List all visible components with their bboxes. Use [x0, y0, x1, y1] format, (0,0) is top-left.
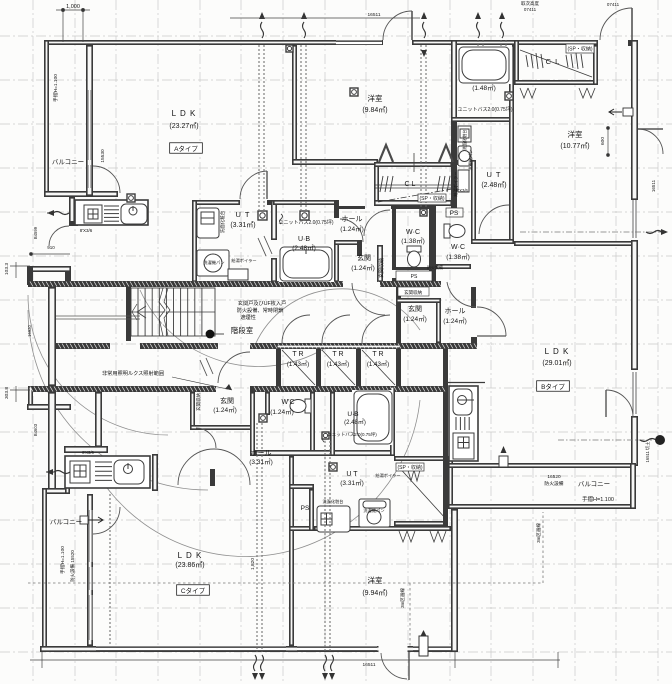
- svg-text:U·B: U·B: [347, 411, 358, 418]
- svg-text:U·B: U·B: [298, 236, 310, 243]
- svg-text:15530: 15530: [100, 149, 106, 163]
- svg-text:(10.77㎡): (10.77㎡): [560, 142, 589, 150]
- svg-text:L D K: L D K: [172, 109, 197, 118]
- svg-text:(2.48㎡): (2.48㎡): [344, 418, 366, 426]
- svg-text:取次高度: 取次高度: [521, 0, 539, 7]
- svg-text:(SP・収納): (SP・収納): [397, 464, 422, 471]
- svg-text:(29.01㎡): (29.01㎡): [542, 359, 571, 367]
- svg-text:1,000: 1,000: [66, 4, 80, 10]
- svg-text:(1.24㎡): (1.24㎡): [340, 224, 363, 233]
- svg-text:B4599: B4599: [33, 226, 38, 239]
- svg-text:洋室: 洋室: [368, 93, 383, 103]
- svg-text:(1.24㎡): (1.24㎡): [403, 314, 426, 323]
- svg-text:07411: 07411: [607, 2, 620, 7]
- svg-text:洗濯機パン: 洗濯機パン: [203, 259, 224, 266]
- svg-text:玄関収納: 玄関収納: [378, 258, 385, 278]
- svg-text:防火設備、常時閉鎖: 防火設備、常時閉鎖: [237, 306, 285, 314]
- svg-text:(1.24㎡): (1.24㎡): [270, 407, 293, 416]
- svg-text:洋室: 洋室: [568, 129, 583, 139]
- svg-text:洗面化粧台: 洗面化粧台: [219, 210, 226, 233]
- svg-text:W'C: W'C: [282, 399, 295, 406]
- svg-text:3m区画線: 3m区画線: [535, 523, 542, 543]
- svg-text:手摺H=1.100: 手摺H=1.100: [59, 546, 66, 574]
- svg-text:16520: 16520: [547, 474, 561, 480]
- svg-text:ユニットバス2.0(0.75坪): ユニットバス2.0(0.75坪): [327, 431, 377, 438]
- svg-text:910: 910: [47, 245, 55, 250]
- svg-text:洗濯機パン: 洗濯機パン: [467, 149, 474, 170]
- svg-text:バルコニー: バルコニー: [50, 518, 82, 526]
- svg-text:U T: U T: [236, 210, 251, 219]
- svg-text:ユニットバス2.0(0.75坪): ユニットバス2.0(0.75坪): [457, 106, 512, 113]
- svg-text:B4603: B4603: [33, 423, 38, 436]
- svg-text:PS: PS: [301, 505, 310, 512]
- svg-text:階段室: 階段室: [231, 325, 254, 335]
- svg-text:バルコニー: バルコニー: [578, 480, 610, 488]
- svg-text:(1.48㎡): (1.48㎡): [472, 83, 495, 92]
- svg-text:玄関: 玄関: [408, 304, 422, 313]
- svg-text:T R: T R: [292, 351, 303, 358]
- svg-text:U T: U T: [487, 170, 502, 179]
- svg-text:16920: 16920: [27, 325, 32, 337]
- svg-text:8'X3/6: 8'X3/6: [80, 228, 93, 233]
- svg-text:C L: C L: [405, 181, 416, 188]
- svg-text:玄関収納: 玄関収納: [404, 289, 422, 296]
- svg-text:W·C: W·C: [451, 244, 465, 251]
- svg-text:07411: 07411: [524, 7, 537, 12]
- svg-text:玄関収納: 玄関収納: [195, 393, 202, 411]
- svg-text:洗濯機パン: 洗濯機パン: [363, 507, 384, 514]
- svg-text:8'X3/6: 8'X3/6: [82, 450, 94, 455]
- svg-text:600: 600: [600, 137, 606, 145]
- svg-text:PS: PS: [450, 210, 459, 217]
- svg-text:給湯ボイラー: 給湯ボイラー: [231, 257, 256, 264]
- svg-text:(1.24㎡): (1.24㎡): [443, 316, 466, 325]
- svg-text:W·C: W·C: [406, 229, 420, 236]
- svg-text:ホール: ホール: [342, 215, 363, 223]
- svg-text:U T: U T: [346, 471, 358, 478]
- svg-text:(2.48㎡): (2.48㎡): [481, 181, 506, 189]
- svg-text:L D K: L D K: [545, 347, 570, 356]
- svg-text:Aタイプ: Aタイプ: [174, 144, 198, 153]
- svg-text:洋室: 洋室: [368, 575, 383, 585]
- svg-text:玄関: 玄関: [220, 396, 234, 405]
- svg-text:手摺H=1.100: 手摺H=1.100: [582, 495, 614, 503]
- svg-text:防火設備: 防火設備: [544, 480, 563, 487]
- svg-text:(23.27㎡): (23.27㎡): [169, 122, 198, 130]
- svg-text:洗面化粧台: 洗面化粧台: [323, 498, 344, 505]
- svg-text:PS: PS: [411, 274, 418, 280]
- svg-text:(3.31㎡): (3.31㎡): [230, 221, 255, 229]
- svg-text:(SP・収納): (SP・収納): [419, 195, 444, 202]
- svg-text:(3.31㎡): (3.31㎡): [249, 457, 272, 466]
- svg-text:T R: T R: [332, 351, 343, 358]
- svg-text:ユニットバス2.0(0.75坪): ユニットバス2.0(0.75坪): [278, 219, 333, 226]
- svg-text:103.3: 103.3: [4, 263, 10, 275]
- svg-text:Cタイプ: Cタイプ: [181, 586, 206, 595]
- svg-text:(SP・収納): (SP・収納): [567, 46, 592, 53]
- svg-text:8'X3/6: 8'X3/6: [456, 188, 468, 193]
- svg-text:(1.38㎡): (1.38㎡): [401, 236, 424, 245]
- svg-text:1,820: 1,820: [250, 558, 256, 570]
- svg-text:ホール: ホール: [251, 449, 272, 457]
- svg-text:給湯ボイラー: 給湯ボイラー: [375, 472, 400, 479]
- svg-text:洗面化粧台: 洗面化粧台: [461, 130, 468, 151]
- svg-text:(1.24㎡): (1.24㎡): [213, 405, 236, 414]
- svg-text:303.8: 303.8: [4, 387, 10, 399]
- svg-text:T R: T R: [372, 351, 383, 358]
- svg-text:(9.84㎡): (9.84㎡): [362, 106, 387, 114]
- svg-text:16511: 16511: [368, 12, 381, 18]
- svg-text:(3.31㎡): (3.31㎡): [340, 478, 363, 487]
- svg-text:玄関: 玄関: [357, 253, 371, 262]
- svg-text:ホール: ホール: [445, 307, 466, 315]
- svg-text:16511: 16511: [651, 179, 656, 192]
- svg-text:C L: C L: [546, 57, 561, 66]
- svg-text:(23.86㎡): (23.86㎡): [175, 561, 204, 569]
- svg-text:(1.38㎡): (1.38㎡): [446, 252, 469, 261]
- svg-text:防火設備: 防火設備: [427, 264, 443, 270]
- svg-text:3m区画線: 3m区画線: [399, 588, 406, 608]
- svg-text:(1.43㎡): (1.43㎡): [327, 360, 349, 368]
- svg-text:(1.43㎡): (1.43㎡): [367, 360, 389, 368]
- svg-text:16511 切土: 16511 切土: [644, 442, 651, 463]
- svg-text:バルコニー: バルコニー: [52, 158, 84, 166]
- svg-text:玄関戸及びUF枚入戸: 玄関戸及びUF枚入戸: [238, 299, 286, 307]
- svg-text:(2.48㎡): (2.48㎡): [292, 243, 315, 252]
- svg-text:遮煙性: 遮煙性: [240, 313, 256, 321]
- svg-text:手摺H=1.100: 手摺H=1.100: [52, 74, 59, 102]
- svg-text:L D K: L D K: [178, 551, 203, 560]
- svg-text:(1.43㎡): (1.43㎡): [287, 360, 309, 368]
- svg-text:Bタイプ: Bタイプ: [541, 382, 565, 391]
- svg-text:(1.24㎡): (1.24㎡): [351, 263, 374, 272]
- svg-text:防火設備 15520: 防火設備 15520: [69, 550, 76, 582]
- svg-text:(9.94㎡): (9.94㎡): [362, 589, 387, 597]
- svg-text:非常用照明ルクス照射範囲: 非常用照明ルクス照射範囲: [102, 369, 164, 377]
- svg-text:16511: 16511: [363, 662, 376, 668]
